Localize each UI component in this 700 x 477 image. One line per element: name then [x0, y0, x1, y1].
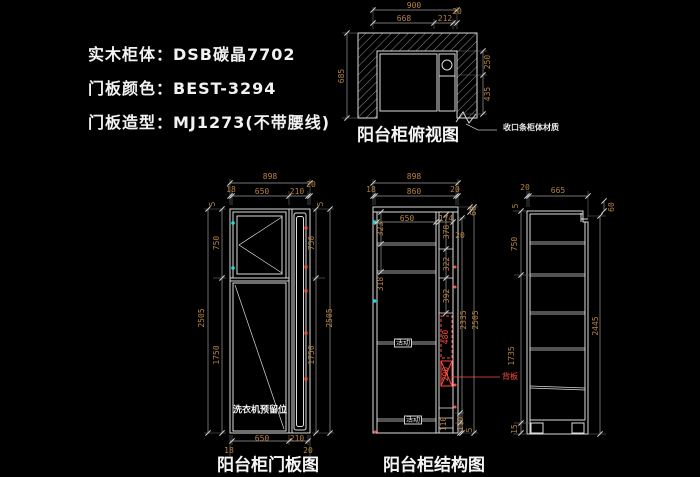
- dim-label: 290: [442, 367, 450, 381]
- dim-label: 2505: [198, 308, 206, 327]
- dim-label: 2335: [460, 310, 468, 329]
- dim-label: 650: [255, 188, 269, 196]
- callout-edge-strip-material: 收口条柜体材质: [503, 124, 559, 132]
- title-top-view: 阳台柜俯视图: [357, 121, 459, 146]
- dim-ticks-side-view: [518, 193, 606, 436]
- dim-label: 18: [226, 186, 236, 194]
- dim-label: 480: [442, 330, 450, 344]
- spec-line-door-style: 门板造型：MJ1273(不带腰线): [88, 106, 330, 140]
- dim-label: 435: [484, 87, 492, 101]
- dim-label: 1750: [308, 345, 316, 364]
- dim-label: 668: [397, 15, 411, 23]
- structure-view-drawing: [370, 179, 500, 436]
- dim-label: 898: [263, 173, 277, 181]
- dim-label: 20: [520, 184, 530, 192]
- spec-line-cabinet: 实木柜体：DSB碳晶7702: [88, 38, 330, 72]
- dim-label: 250: [484, 55, 492, 69]
- dim-label: 2505: [472, 310, 480, 329]
- dim-label: 2445: [592, 316, 600, 335]
- dim-label: 110: [440, 417, 448, 431]
- dim-label: 15: [511, 424, 519, 434]
- dim-label: 2505: [326, 308, 334, 327]
- dim-label: 5: [317, 202, 325, 207]
- dim-label: 750: [213, 236, 221, 250]
- dim-label: 898: [407, 173, 421, 181]
- spec-line-door-color: 门板颜色：BEST-3294: [88, 72, 330, 106]
- dim-ticks-structure-view: [370, 180, 476, 435]
- dim-label: 322: [443, 257, 451, 271]
- dim-label: 20: [452, 8, 462, 16]
- dim-label: 60: [470, 206, 478, 216]
- dim-label: 110: [457, 417, 465, 431]
- spec-text-block: 实木柜体：DSB碳晶7702 门板颜色：BEST-3294 门板造型：MJ127…: [88, 38, 330, 140]
- side-view-drawing: [513, 191, 607, 437]
- dim-label: 650: [255, 435, 269, 443]
- dim-label: 750: [511, 237, 519, 251]
- dim-label: 5: [466, 428, 474, 433]
- dim-ticks-door-view: [205, 180, 332, 443]
- dim-label: 860: [407, 188, 421, 196]
- dim-label: 900: [407, 2, 421, 10]
- dim-label: 20: [306, 181, 316, 189]
- title-structure-view: 阳台柜结构图: [383, 451, 485, 476]
- callout-back-panel: 背板: [502, 373, 518, 381]
- dim-label: 5: [209, 202, 217, 207]
- dim-label: 20: [455, 232, 465, 240]
- dim-label: 5: [512, 204, 520, 209]
- top-view-drawing: [342, 7, 497, 130]
- dim-label: 210: [290, 435, 304, 443]
- shelf-label-movable-1: 活动: [394, 339, 412, 348]
- dim-label: 174: [439, 215, 453, 223]
- note-washing-machine-space: 洗衣机预留位: [233, 407, 287, 416]
- dim-label: 1750: [213, 345, 221, 364]
- dim-label: 20: [303, 447, 313, 455]
- dim-label: 210: [290, 188, 304, 196]
- dim-label: 392: [443, 289, 451, 303]
- dim-label: 1735: [508, 346, 516, 365]
- dim-label: 378: [443, 225, 451, 239]
- dim-label: 18: [224, 447, 234, 455]
- dim-label: 318: [377, 277, 385, 291]
- dim-label: 212: [438, 15, 452, 23]
- dim-label: 665: [551, 187, 565, 195]
- dim-label: 20: [450, 186, 460, 194]
- dim-label: 18: [366, 186, 376, 194]
- cad-canvas: 实木柜体：DSB碳晶7702 门板颜色：BEST-3294 门板造型：MJ127…: [0, 0, 700, 477]
- dim-label: 323: [377, 222, 385, 236]
- shelf-label-movable-2: 活动: [404, 416, 422, 425]
- dim-label: 650: [400, 215, 414, 223]
- dim-label: 60: [608, 202, 616, 212]
- dim-label: 685: [338, 69, 346, 83]
- dim-label: 750: [308, 236, 316, 250]
